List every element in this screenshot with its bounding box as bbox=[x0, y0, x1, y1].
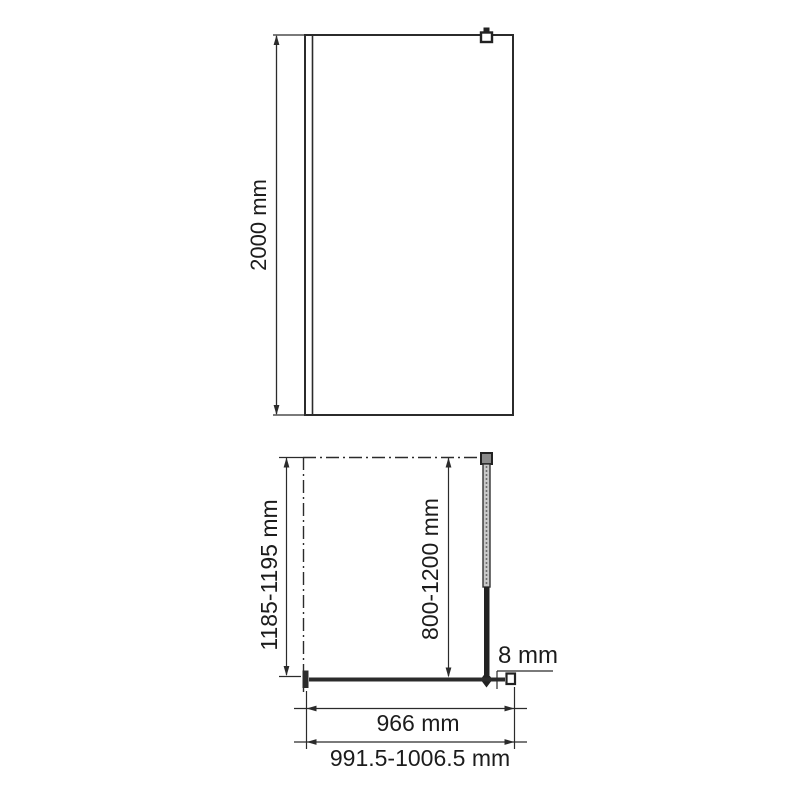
diagram-canvas: 2000 mm 1185-1195 mm 80 bbox=[0, 0, 800, 800]
bar-length-dimension: 800-1200 mm bbox=[417, 458, 451, 678]
plan-end-fitting bbox=[507, 674, 516, 685]
bar-length-dimension-label: 800-1200 mm bbox=[417, 498, 443, 640]
glass-width-label: 966 mm bbox=[376, 710, 459, 736]
support-bracket-icon bbox=[481, 28, 492, 43]
height-dimension-label: 2000 mm bbox=[246, 179, 271, 271]
depth-dimension: 1185-1195 mm bbox=[256, 458, 303, 677]
bar-arrow-down bbox=[446, 668, 452, 678]
height-arrow-down bbox=[274, 405, 280, 415]
shower-screen-dimension-drawing: 2000 mm 1185-1195 mm 80 bbox=[0, 0, 800, 800]
plan-glass-panel bbox=[309, 678, 505, 682]
height-dimension: 2000 mm bbox=[246, 35, 305, 415]
front-view: 2000 mm bbox=[246, 28, 513, 416]
plan-wall-profile bbox=[303, 671, 309, 689]
support-bar-wall-fitting bbox=[481, 453, 492, 464]
support-bar-inner-tube bbox=[484, 587, 490, 675]
glass-thickness-label: 8 mm bbox=[498, 642, 558, 669]
plan-view: 1185-1195 mm 800-1200 mm bbox=[256, 453, 558, 771]
support-bar bbox=[481, 453, 493, 688]
depth-dimension-label: 1185-1195 mm bbox=[256, 499, 282, 650]
bar-arrow-up bbox=[446, 458, 452, 468]
overall-width-arrow-left bbox=[307, 739, 317, 745]
front-glass-panel-outline bbox=[305, 35, 513, 415]
depth-arrow-up bbox=[284, 458, 290, 468]
bracket-body bbox=[481, 33, 492, 43]
height-arrow-up bbox=[274, 35, 280, 45]
width-dimensions: 966 mm 991.5-1006.5 mm bbox=[294, 687, 527, 771]
glass-width-arrow-left bbox=[307, 706, 317, 712]
depth-arrow-down bbox=[284, 666, 290, 676]
overall-width-label: 991.5-1006.5 mm bbox=[330, 745, 510, 771]
glass-width-arrow-right bbox=[505, 706, 515, 712]
glass-thickness-dimension: 8 mm bbox=[489, 642, 558, 689]
